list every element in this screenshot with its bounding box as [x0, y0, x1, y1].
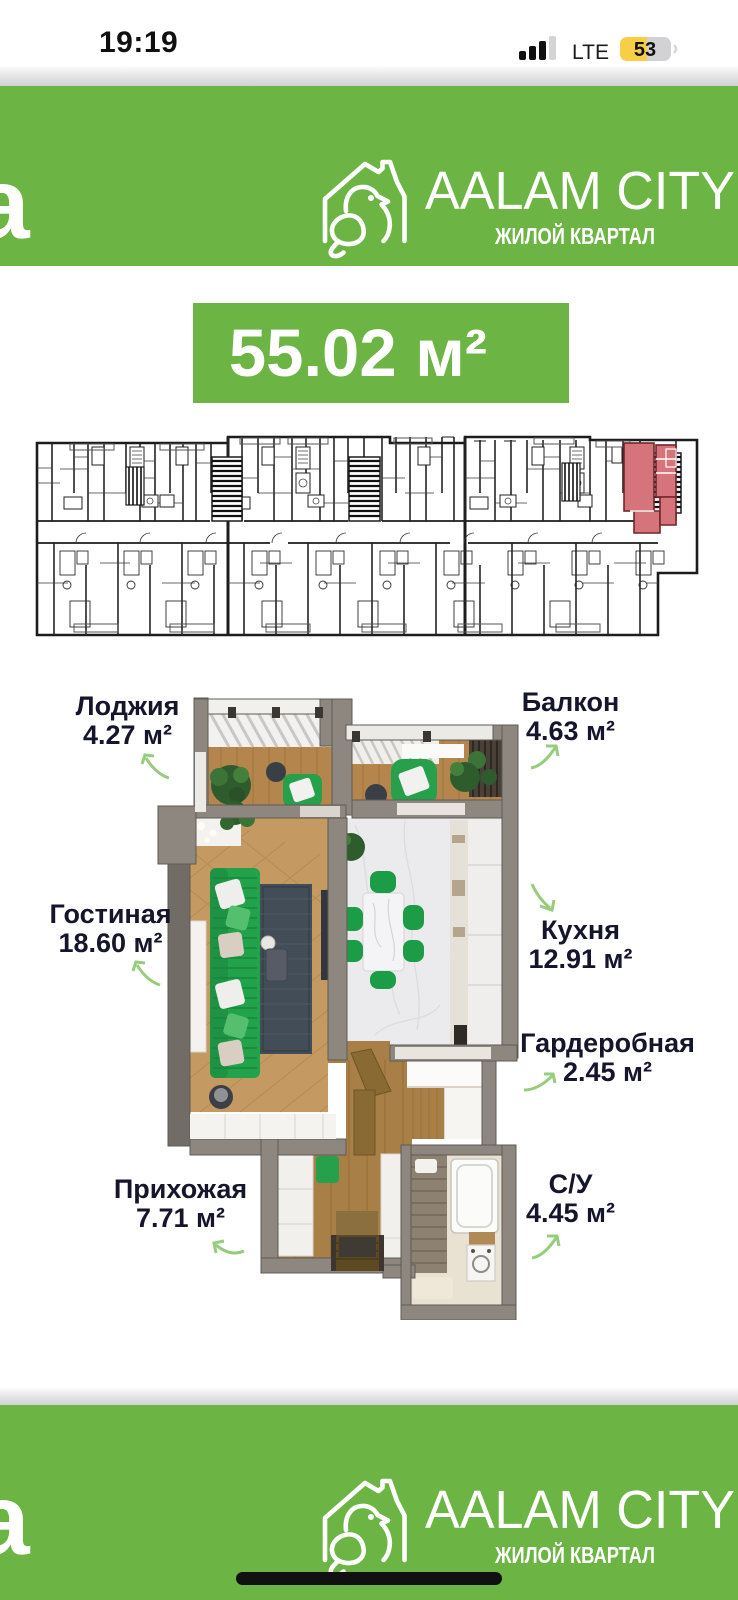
svg-text:AALAM CITY: AALAM CITY: [425, 1480, 735, 1540]
svg-text:ЖИЛОЙ КВАРТАЛ: ЖИЛОЙ КВАРТАЛ: [494, 222, 655, 249]
svg-text:53: 53: [634, 39, 656, 61]
svg-text:LTE: LTE: [572, 41, 609, 64]
svg-text:ЖИЛОЙ КВАРТАЛ: ЖИЛОЙ КВАРТАЛ: [494, 1541, 655, 1568]
svg-text:AALAM CITY: AALAM CITY: [425, 161, 735, 221]
